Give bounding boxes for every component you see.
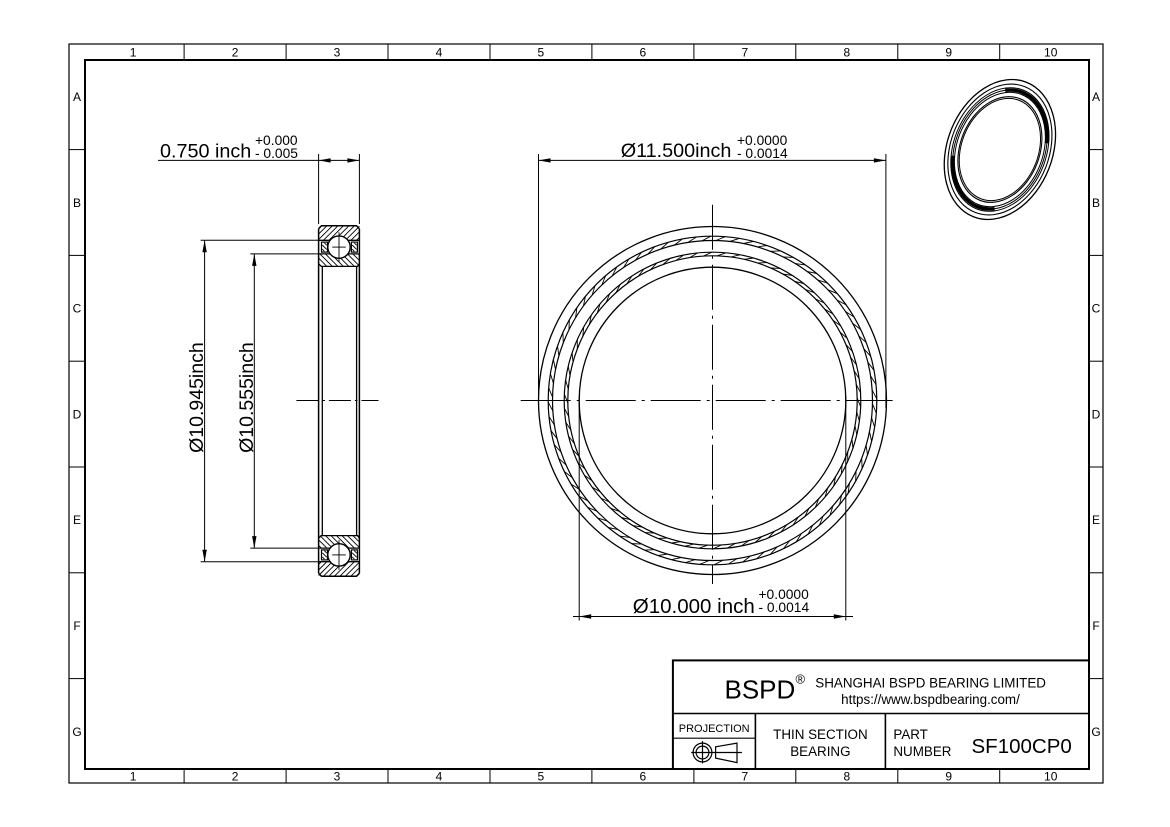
svg-text:E: E	[73, 513, 81, 527]
svg-text:Ø11.500inch: Ø11.500inch	[621, 140, 732, 162]
svg-text:G: G	[72, 725, 81, 739]
svg-text:7: 7	[741, 46, 748, 60]
svg-text:B: B	[73, 196, 81, 210]
svg-text:8: 8	[843, 46, 850, 60]
svg-text:6: 6	[640, 46, 647, 60]
svg-text:1: 1	[130, 770, 137, 784]
svg-text:2: 2	[232, 46, 239, 60]
svg-text:4: 4	[436, 770, 443, 784]
svg-text:SF100CP0: SF100CP0	[972, 735, 1072, 758]
svg-text:G: G	[1091, 725, 1100, 739]
svg-text:https://www.bspdbearing.com/: https://www.bspdbearing.com/	[841, 692, 1020, 707]
svg-text:0.750 inch: 0.750 inch	[160, 140, 251, 162]
svg-text:9: 9	[945, 770, 952, 784]
svg-text:A: A	[73, 90, 81, 104]
svg-text:8: 8	[843, 770, 850, 784]
svg-text:PART: PART	[893, 727, 927, 742]
svg-text:Ø10.000 inch: Ø10.000 inch	[633, 595, 755, 618]
svg-text:- 0.0014: - 0.0014	[737, 146, 788, 161]
svg-text:3: 3	[334, 770, 341, 784]
svg-text:D: D	[1092, 407, 1101, 421]
svg-text:D: D	[73, 407, 82, 421]
svg-text:F: F	[1092, 619, 1099, 633]
svg-text:3: 3	[334, 46, 341, 60]
svg-text:E: E	[1092, 513, 1100, 527]
svg-text:5: 5	[538, 770, 545, 784]
svg-text:5: 5	[538, 46, 545, 60]
svg-text:THIN SECTION: THIN SECTION	[773, 727, 867, 742]
svg-text:2: 2	[232, 770, 239, 784]
svg-text:C: C	[1092, 302, 1101, 316]
svg-text:6: 6	[640, 770, 647, 784]
svg-text:- 0.0014: - 0.0014	[759, 600, 810, 615]
svg-text:BSPD: BSPD	[725, 675, 796, 705]
svg-text:4: 4	[436, 46, 443, 60]
svg-text:NUMBER: NUMBER	[893, 744, 951, 759]
svg-text:7: 7	[741, 770, 748, 784]
svg-text:SHANGHAI BSPD BEARING LIMITED: SHANGHAI BSPD BEARING LIMITED	[815, 675, 1046, 690]
svg-text:9: 9	[945, 46, 952, 60]
svg-text:1: 1	[130, 46, 137, 60]
svg-text:Ø10.555inch: Ø10.555inch	[236, 342, 258, 453]
svg-text:F: F	[73, 619, 80, 633]
svg-text:10: 10	[1044, 770, 1058, 784]
svg-text:A: A	[1092, 90, 1100, 104]
svg-text:C: C	[73, 302, 82, 316]
svg-text:- 0.005: - 0.005	[255, 146, 298, 161]
svg-text:Ø10.945inch: Ø10.945inch	[186, 342, 208, 453]
svg-text:®: ®	[796, 672, 806, 687]
svg-text:PROJECTION: PROJECTION	[679, 723, 750, 735]
svg-text:10: 10	[1044, 46, 1058, 60]
svg-text:BEARING: BEARING	[790, 744, 850, 759]
svg-text:B: B	[1092, 196, 1100, 210]
